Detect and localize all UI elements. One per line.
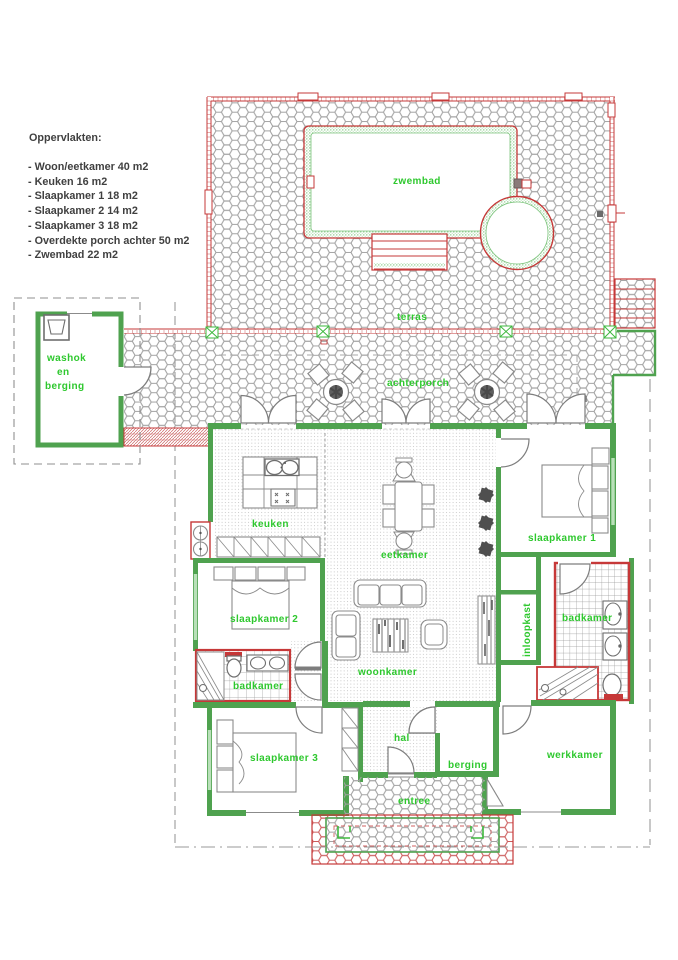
svg-text:werkkamer: werkkamer: [546, 750, 603, 761]
svg-text:achterporch: achterporch: [387, 378, 449, 389]
svg-text:inloopkast: inloopkast: [522, 603, 533, 657]
svg-text:slaapkamer 3: slaapkamer 3: [250, 753, 318, 764]
svg-text:slaapkamer 2: slaapkamer 2: [230, 614, 298, 625]
svg-text:washok: washok: [46, 353, 86, 364]
svg-text:- Woon/eetkamer 40 m2: - Woon/eetkamer 40 m2: [28, 161, 148, 173]
svg-text:berging: berging: [45, 381, 84, 392]
svg-text:- Keuken 16 m2: - Keuken 16 m2: [28, 176, 107, 188]
svg-text:keuken: keuken: [252, 519, 289, 530]
svg-text:- Overdekte porch achter 50 m2: - Overdekte porch achter 50 m2: [28, 235, 189, 247]
svg-text:entree: entree: [398, 796, 430, 807]
svg-text:- Slaapkamer 1 18 m2: - Slaapkamer 1 18 m2: [28, 190, 138, 202]
svg-text:zwembad: zwembad: [393, 176, 441, 187]
svg-text:en: en: [57, 367, 69, 378]
svg-text:berging: berging: [448, 760, 487, 771]
svg-text:hal: hal: [394, 733, 410, 744]
svg-text:woonkamer: woonkamer: [357, 667, 417, 678]
svg-text:- Slaapkamer 3 18 m2: - Slaapkamer 3 18 m2: [28, 220, 138, 232]
svg-text:badkamer: badkamer: [562, 613, 612, 624]
svg-text:terras: terras: [397, 312, 427, 323]
svg-text:eetkamer: eetkamer: [381, 550, 428, 561]
svg-text:Oppervlakten:: Oppervlakten:: [29, 132, 102, 144]
svg-text:- Zwembad 22 m2: - Zwembad 22 m2: [28, 249, 118, 261]
svg-text:slaapkamer 1: slaapkamer 1: [528, 533, 596, 544]
svg-text:- Slaapkamer 2 14 m2: - Slaapkamer 2 14 m2: [28, 205, 138, 217]
svg-text:badkamer: badkamer: [233, 681, 283, 692]
